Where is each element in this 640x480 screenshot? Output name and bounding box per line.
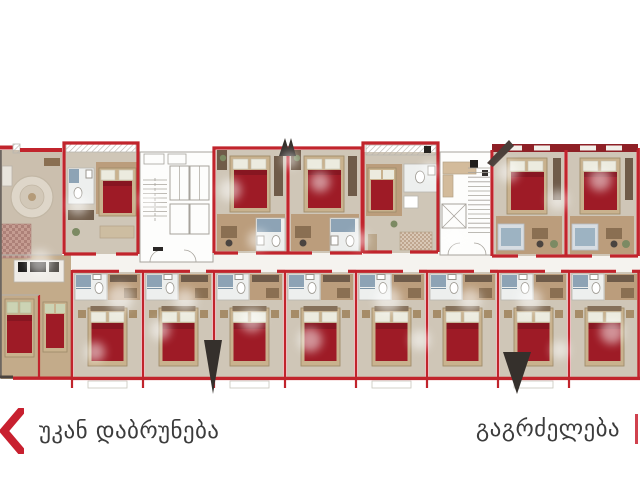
core-core-b — [440, 152, 492, 255]
unit-suite-e[interactable] — [363, 143, 438, 253]
unit-suite-f[interactable] — [492, 144, 566, 256]
back-label: უკან დაბრუნება — [39, 418, 219, 444]
bottom-navigation: უკან დაბრუნება გაგრძელება — [0, 398, 640, 468]
unit-room-5[interactable] — [356, 270, 427, 388]
unit-suite-g[interactable] — [566, 144, 638, 256]
unit-room-6[interactable] — [427, 270, 498, 388]
unit-room-4[interactable] — [285, 270, 356, 388]
chevron-right-icon — [635, 412, 638, 446]
back-button[interactable]: უკან დაბრუნება — [0, 408, 219, 454]
floor-plan-svg — [0, 0, 640, 400]
chevron-left-icon — [0, 408, 24, 454]
unit-room-3[interactable] — [214, 270, 285, 388]
unit-apartment-a[interactable] — [0, 144, 72, 379]
unit-suite-c[interactable] — [214, 148, 288, 253]
core-core-a — [140, 152, 213, 262]
unit-room-8[interactable] — [569, 270, 640, 388]
unit-suite-b[interactable] — [64, 143, 138, 254]
unit-room-1[interactable] — [72, 270, 143, 388]
floor-plan — [0, 0, 640, 400]
unit-room-7[interactable] — [498, 270, 569, 388]
unit-room-2[interactable] — [143, 270, 214, 388]
continue-button[interactable]: გაგრძელება — [476, 412, 638, 446]
continue-label: გაგრძელება — [476, 416, 620, 442]
unit-suite-d[interactable] — [288, 148, 362, 253]
page-root: უკან დაბრუნება გაგრძელება — [0, 0, 640, 480]
